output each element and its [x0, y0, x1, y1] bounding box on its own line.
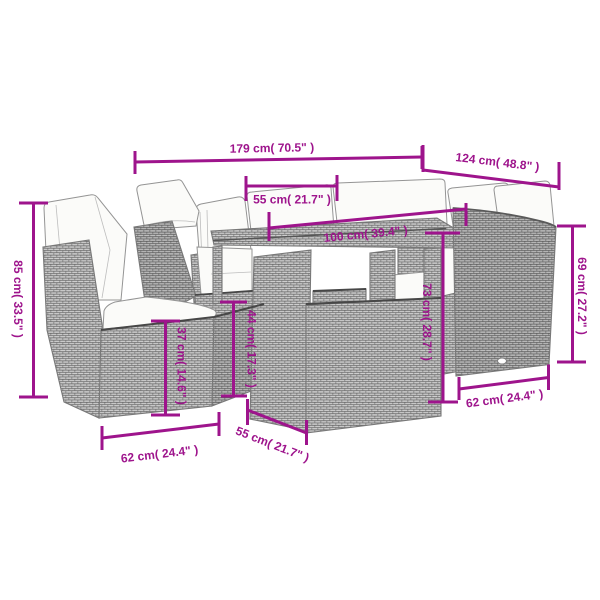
- svg-text:44 cm( 17.3" ): 44 cm( 17.3" ): [245, 310, 259, 388]
- svg-text:73 cm( 28.7" ): 73 cm( 28.7" ): [420, 283, 434, 361]
- svg-text:85 cm( 33.5" ): 85 cm( 33.5" ): [11, 260, 25, 338]
- svg-text:55 cm( 21.7" ): 55 cm( 21.7" ): [253, 193, 331, 207]
- svg-text:37 cm( 14.6" ): 37 cm( 14.6" ): [175, 327, 189, 405]
- svg-text:69 cm( 27.2" ): 69 cm( 27.2" ): [575, 257, 589, 335]
- svg-text:179 cm( 70.5" ): 179 cm( 70.5" ): [230, 140, 315, 155]
